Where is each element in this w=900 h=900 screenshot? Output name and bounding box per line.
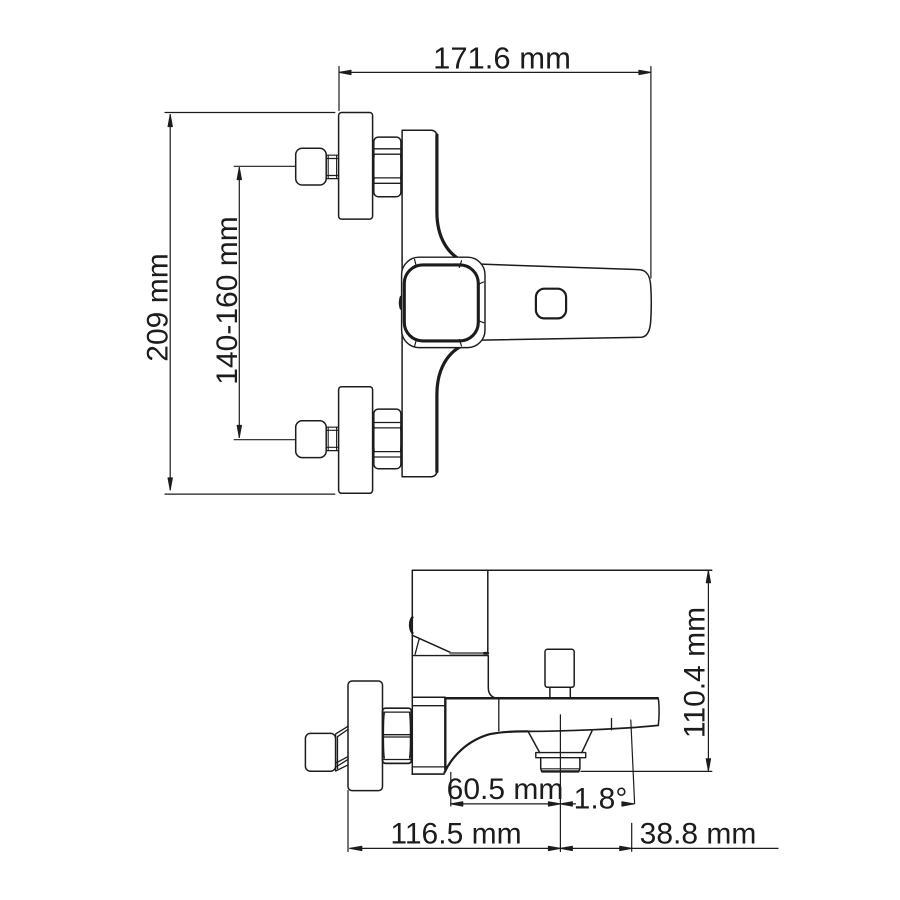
svg-text:110.4 mm: 110.4 mm xyxy=(679,607,712,738)
svg-text:1.8°: 1.8° xyxy=(574,783,628,816)
svg-text:116.5 mm: 116.5 mm xyxy=(390,817,521,850)
svg-text:140-160 mm: 140-160 mm xyxy=(211,216,244,384)
svg-text:171.6 mm: 171.6 mm xyxy=(433,41,571,76)
svg-text:60.5 mm: 60.5 mm xyxy=(447,773,564,806)
svg-text:38.8 mm: 38.8 mm xyxy=(640,817,757,850)
svg-text:209 mm: 209 mm xyxy=(142,253,175,361)
